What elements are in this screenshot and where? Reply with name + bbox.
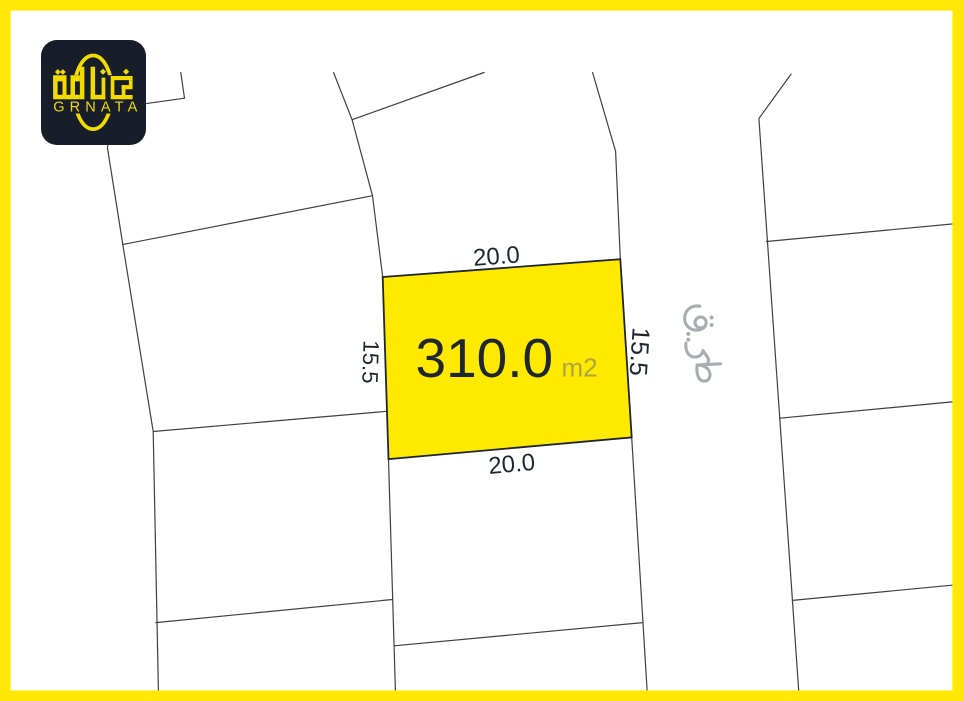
svg-text:310.0: 310.0 xyxy=(416,327,554,389)
svg-text:20.0: 20.0 xyxy=(472,241,521,271)
svg-text:15.5: 15.5 xyxy=(624,326,655,376)
svg-text:GRNATA: GRNATA xyxy=(53,100,142,116)
svg-text:20.0: 20.0 xyxy=(487,449,536,480)
svg-text:15.5: 15.5 xyxy=(357,340,383,384)
svg-text:m2: m2 xyxy=(562,353,598,383)
